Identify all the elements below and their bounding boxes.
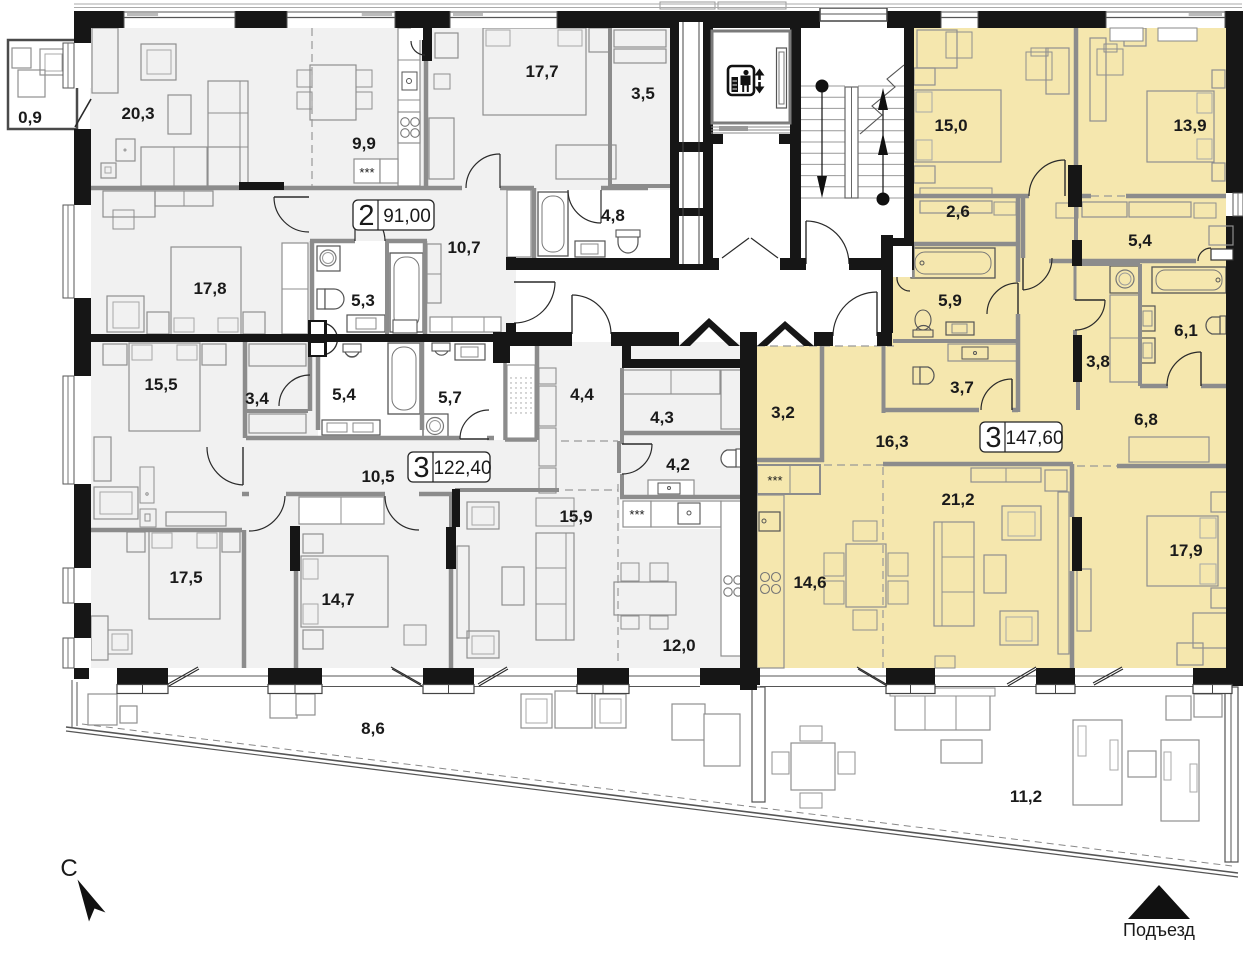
svg-text:3: 3 bbox=[413, 452, 429, 484]
svg-text:10,5: 10,5 bbox=[361, 467, 394, 486]
svg-text:17,8: 17,8 bbox=[193, 279, 226, 298]
svg-text:5,3: 5,3 bbox=[351, 291, 375, 310]
svg-text:5,7: 5,7 bbox=[438, 388, 462, 407]
svg-text:3,2: 3,2 bbox=[771, 403, 795, 422]
svg-text:5,9: 5,9 bbox=[938, 291, 962, 310]
svg-text:15,0: 15,0 bbox=[934, 116, 967, 135]
svg-text:3,4: 3,4 bbox=[245, 389, 269, 408]
svg-text:6,8: 6,8 bbox=[1134, 410, 1158, 429]
svg-text:16,3: 16,3 bbox=[875, 432, 908, 451]
svg-text:4,2: 4,2 bbox=[666, 455, 690, 474]
svg-text:3: 3 bbox=[985, 422, 1001, 454]
svg-text:91,00: 91,00 bbox=[383, 206, 431, 227]
svg-text:13,9: 13,9 bbox=[1173, 116, 1206, 135]
svg-text:***: *** bbox=[767, 473, 782, 488]
svg-text:12,0: 12,0 bbox=[662, 636, 695, 655]
svg-text:9,9: 9,9 bbox=[352, 134, 376, 153]
svg-text:3,7: 3,7 bbox=[950, 378, 974, 397]
svg-text:17,5: 17,5 bbox=[169, 568, 202, 587]
svg-text:15,5: 15,5 bbox=[144, 375, 177, 394]
svg-text:Подъезд: Подъезд bbox=[1123, 920, 1195, 940]
svg-text:6,1: 6,1 bbox=[1174, 321, 1198, 340]
svg-text:4,8: 4,8 bbox=[601, 206, 625, 225]
svg-text:4,3: 4,3 bbox=[650, 408, 674, 427]
svg-text:10,7: 10,7 bbox=[447, 238, 480, 257]
svg-text:122,40: 122,40 bbox=[433, 458, 491, 479]
svg-text:20,3: 20,3 bbox=[121, 104, 154, 123]
svg-text:2,6: 2,6 bbox=[946, 202, 970, 221]
svg-text:5,4: 5,4 bbox=[1128, 231, 1152, 250]
svg-text:***: *** bbox=[629, 507, 644, 522]
svg-text:14,6: 14,6 bbox=[793, 573, 826, 592]
svg-text:147,60: 147,60 bbox=[1005, 428, 1063, 449]
svg-text:3,5: 3,5 bbox=[631, 84, 655, 103]
svg-text:17,7: 17,7 bbox=[525, 62, 558, 81]
svg-text:0,9: 0,9 bbox=[18, 108, 42, 127]
svg-text:3,8: 3,8 bbox=[1086, 352, 1110, 371]
svg-text:***: *** bbox=[359, 165, 374, 180]
svg-text:14,7: 14,7 bbox=[321, 590, 354, 609]
svg-text:15,9: 15,9 bbox=[559, 507, 592, 526]
svg-text:8,6: 8,6 bbox=[361, 719, 385, 738]
svg-text:5,4: 5,4 bbox=[332, 385, 356, 404]
svg-text:C: C bbox=[60, 855, 77, 882]
svg-text:4,4: 4,4 bbox=[570, 385, 594, 404]
svg-text:11,2: 11,2 bbox=[1010, 787, 1042, 806]
svg-text:17,9: 17,9 bbox=[1169, 541, 1202, 560]
svg-text:2: 2 bbox=[358, 200, 374, 232]
svg-text:21,2: 21,2 bbox=[941, 490, 974, 509]
